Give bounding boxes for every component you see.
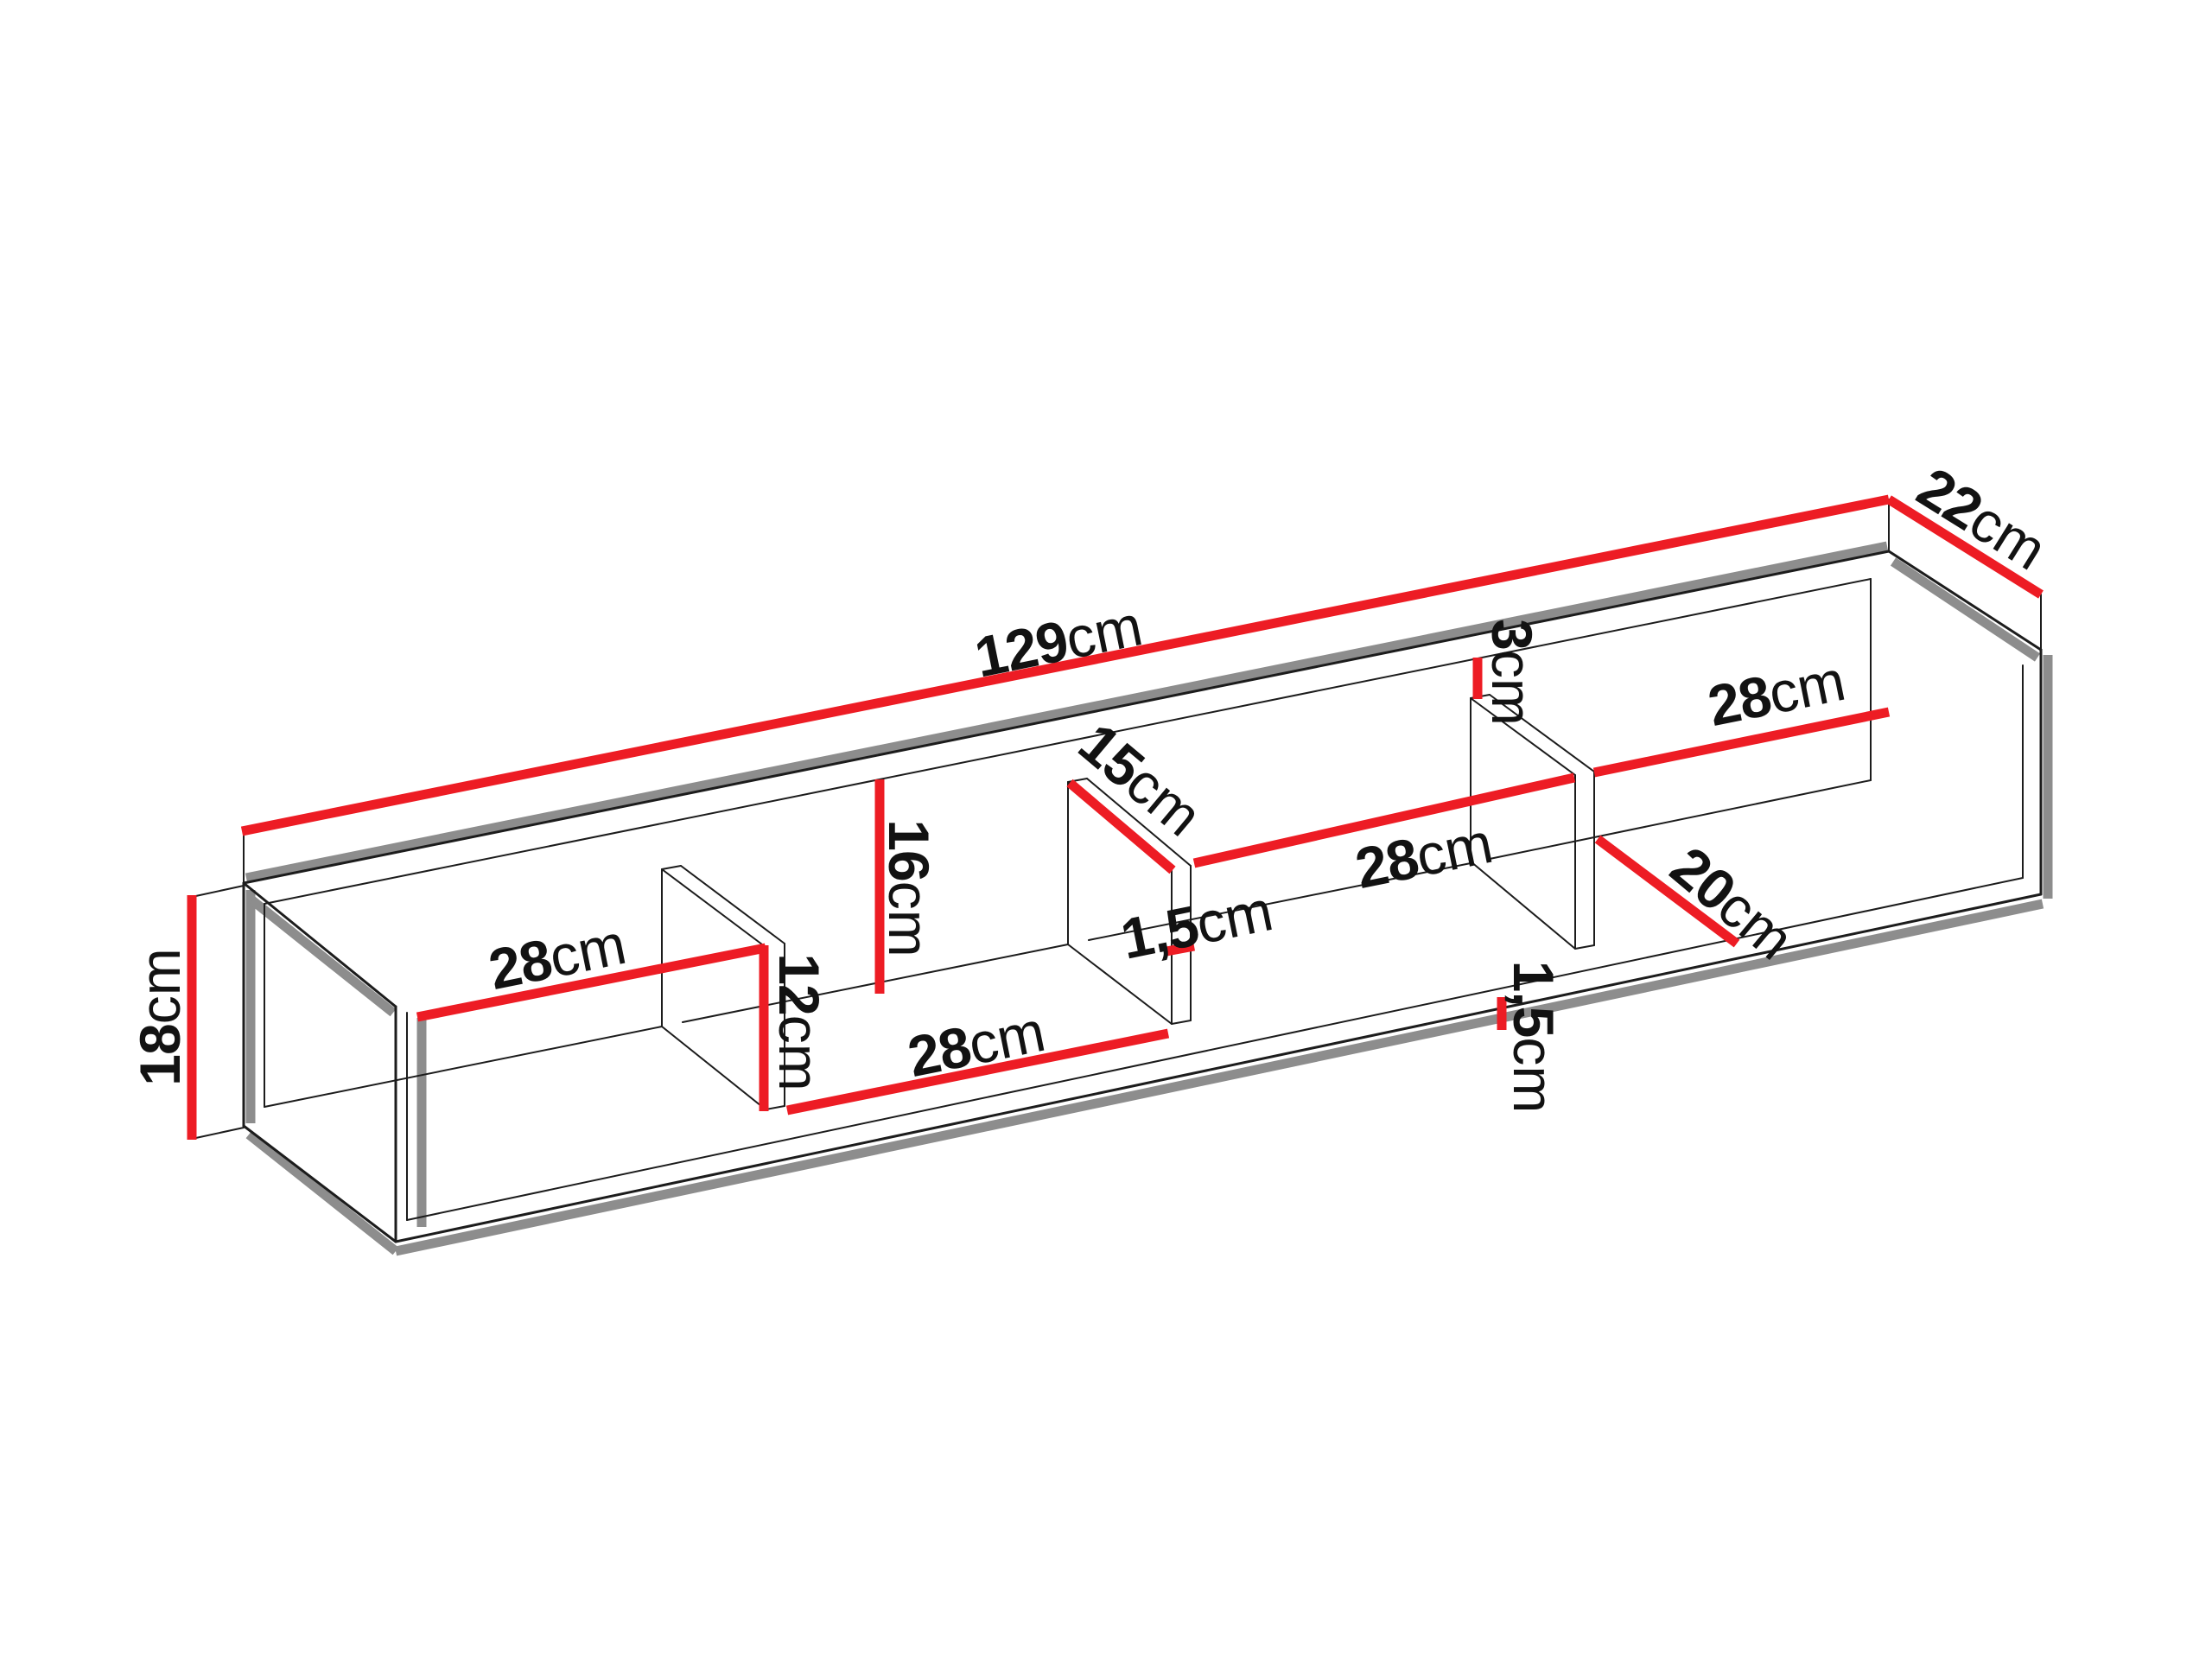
dim-label-divider3-top-gap: 3cm: [1480, 619, 1544, 726]
shelf-dimension-diagram: 129cm 22cm 18cm 28cm 12cm 16cm 15cm 1,5c…: [0, 0, 2212, 1659]
page: 129cm 22cm 18cm 28cm 12cm 16cm 15cm 1,5c…: [0, 0, 2212, 1659]
dim-label-overall-height: 18cm: [128, 948, 192, 1085]
dim-label-bottom-panel-thickness: 1,5cm: [1502, 961, 1566, 1114]
diagram-background: [0, 0, 2212, 1659]
dim-label-divider1-height: 12cm: [767, 953, 831, 1090]
dim-label-compartment2-height: 16cm: [877, 819, 941, 957]
